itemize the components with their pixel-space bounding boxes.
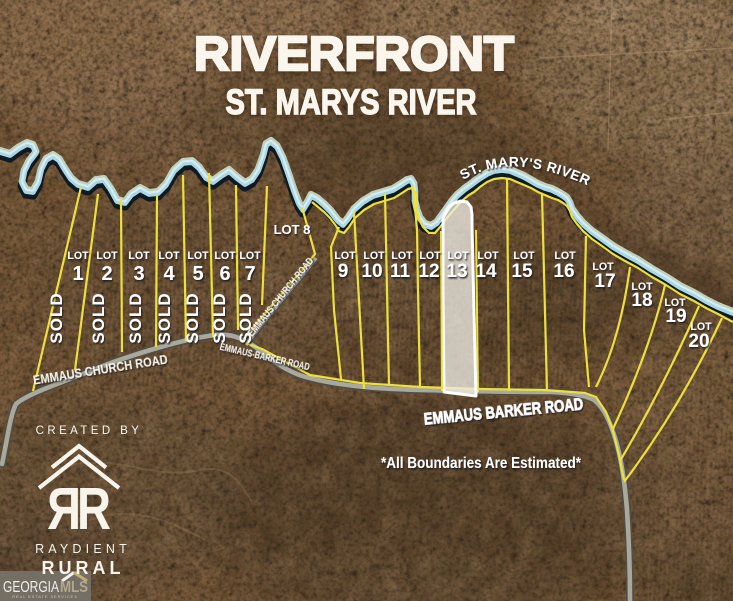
svg-text:5: 5 (192, 263, 203, 285)
svg-text:LOT: LOT (187, 250, 209, 262)
svg-text:3: 3 (133, 263, 144, 285)
svg-text:15: 15 (511, 261, 533, 282)
svg-text:14: 14 (475, 261, 497, 282)
svg-text:LOT: LOT (67, 250, 89, 262)
svg-text:RIVERFRONT: RIVERFRONT (194, 27, 514, 81)
svg-text:9: 9 (338, 261, 349, 282)
svg-text:R: R (77, 476, 111, 542)
svg-text:SOLD: SOLD (155, 292, 174, 343)
svg-text:12: 12 (418, 261, 439, 282)
svg-text:1: 1 (72, 263, 83, 285)
svg-text:SOLD: SOLD (210, 292, 229, 343)
svg-text:SOLD: SOLD (126, 292, 145, 343)
svg-text:CREATED BY: CREATED BY (36, 425, 143, 437)
svg-text:LOT 8: LOT 8 (274, 222, 311, 237)
svg-text:REAL ESTATE SERVICES: REAL ESTATE SERVICES (12, 594, 78, 599)
svg-text:RAYDIENT: RAYDIENT (35, 542, 131, 556)
svg-text:ST. MARYS RIVER: ST. MARYS RIVER (226, 83, 477, 122)
svg-text:R: R (47, 476, 81, 542)
svg-text:16: 16 (553, 261, 574, 282)
svg-text:6: 6 (219, 263, 230, 285)
svg-text:19: 19 (665, 306, 686, 327)
svg-text:LOT: LOT (158, 250, 180, 262)
svg-text:SOLD: SOLD (89, 292, 108, 343)
svg-text:SOLD: SOLD (183, 292, 202, 343)
svg-text:11: 11 (390, 261, 411, 282)
svg-text:17: 17 (594, 271, 615, 292)
svg-text:*All Boundaries Are Estimated*: *All Boundaries Are Estimated* (381, 455, 582, 472)
svg-text:18: 18 (631, 290, 652, 311)
svg-text:4: 4 (163, 263, 175, 285)
svg-text:10: 10 (361, 261, 382, 282)
svg-text:13: 13 (446, 261, 467, 282)
svg-text:LOT: LOT (96, 250, 118, 262)
svg-text:LOT: LOT (239, 250, 261, 262)
svg-text:20: 20 (688, 331, 709, 352)
svg-text:SOLD: SOLD (47, 292, 66, 343)
svg-text:RURAL: RURAL (42, 558, 125, 578)
svg-text:LOT: LOT (214, 250, 236, 262)
svg-text:LOT: LOT (128, 250, 150, 262)
svg-text:2: 2 (101, 263, 112, 285)
svg-text:7: 7 (244, 263, 255, 285)
